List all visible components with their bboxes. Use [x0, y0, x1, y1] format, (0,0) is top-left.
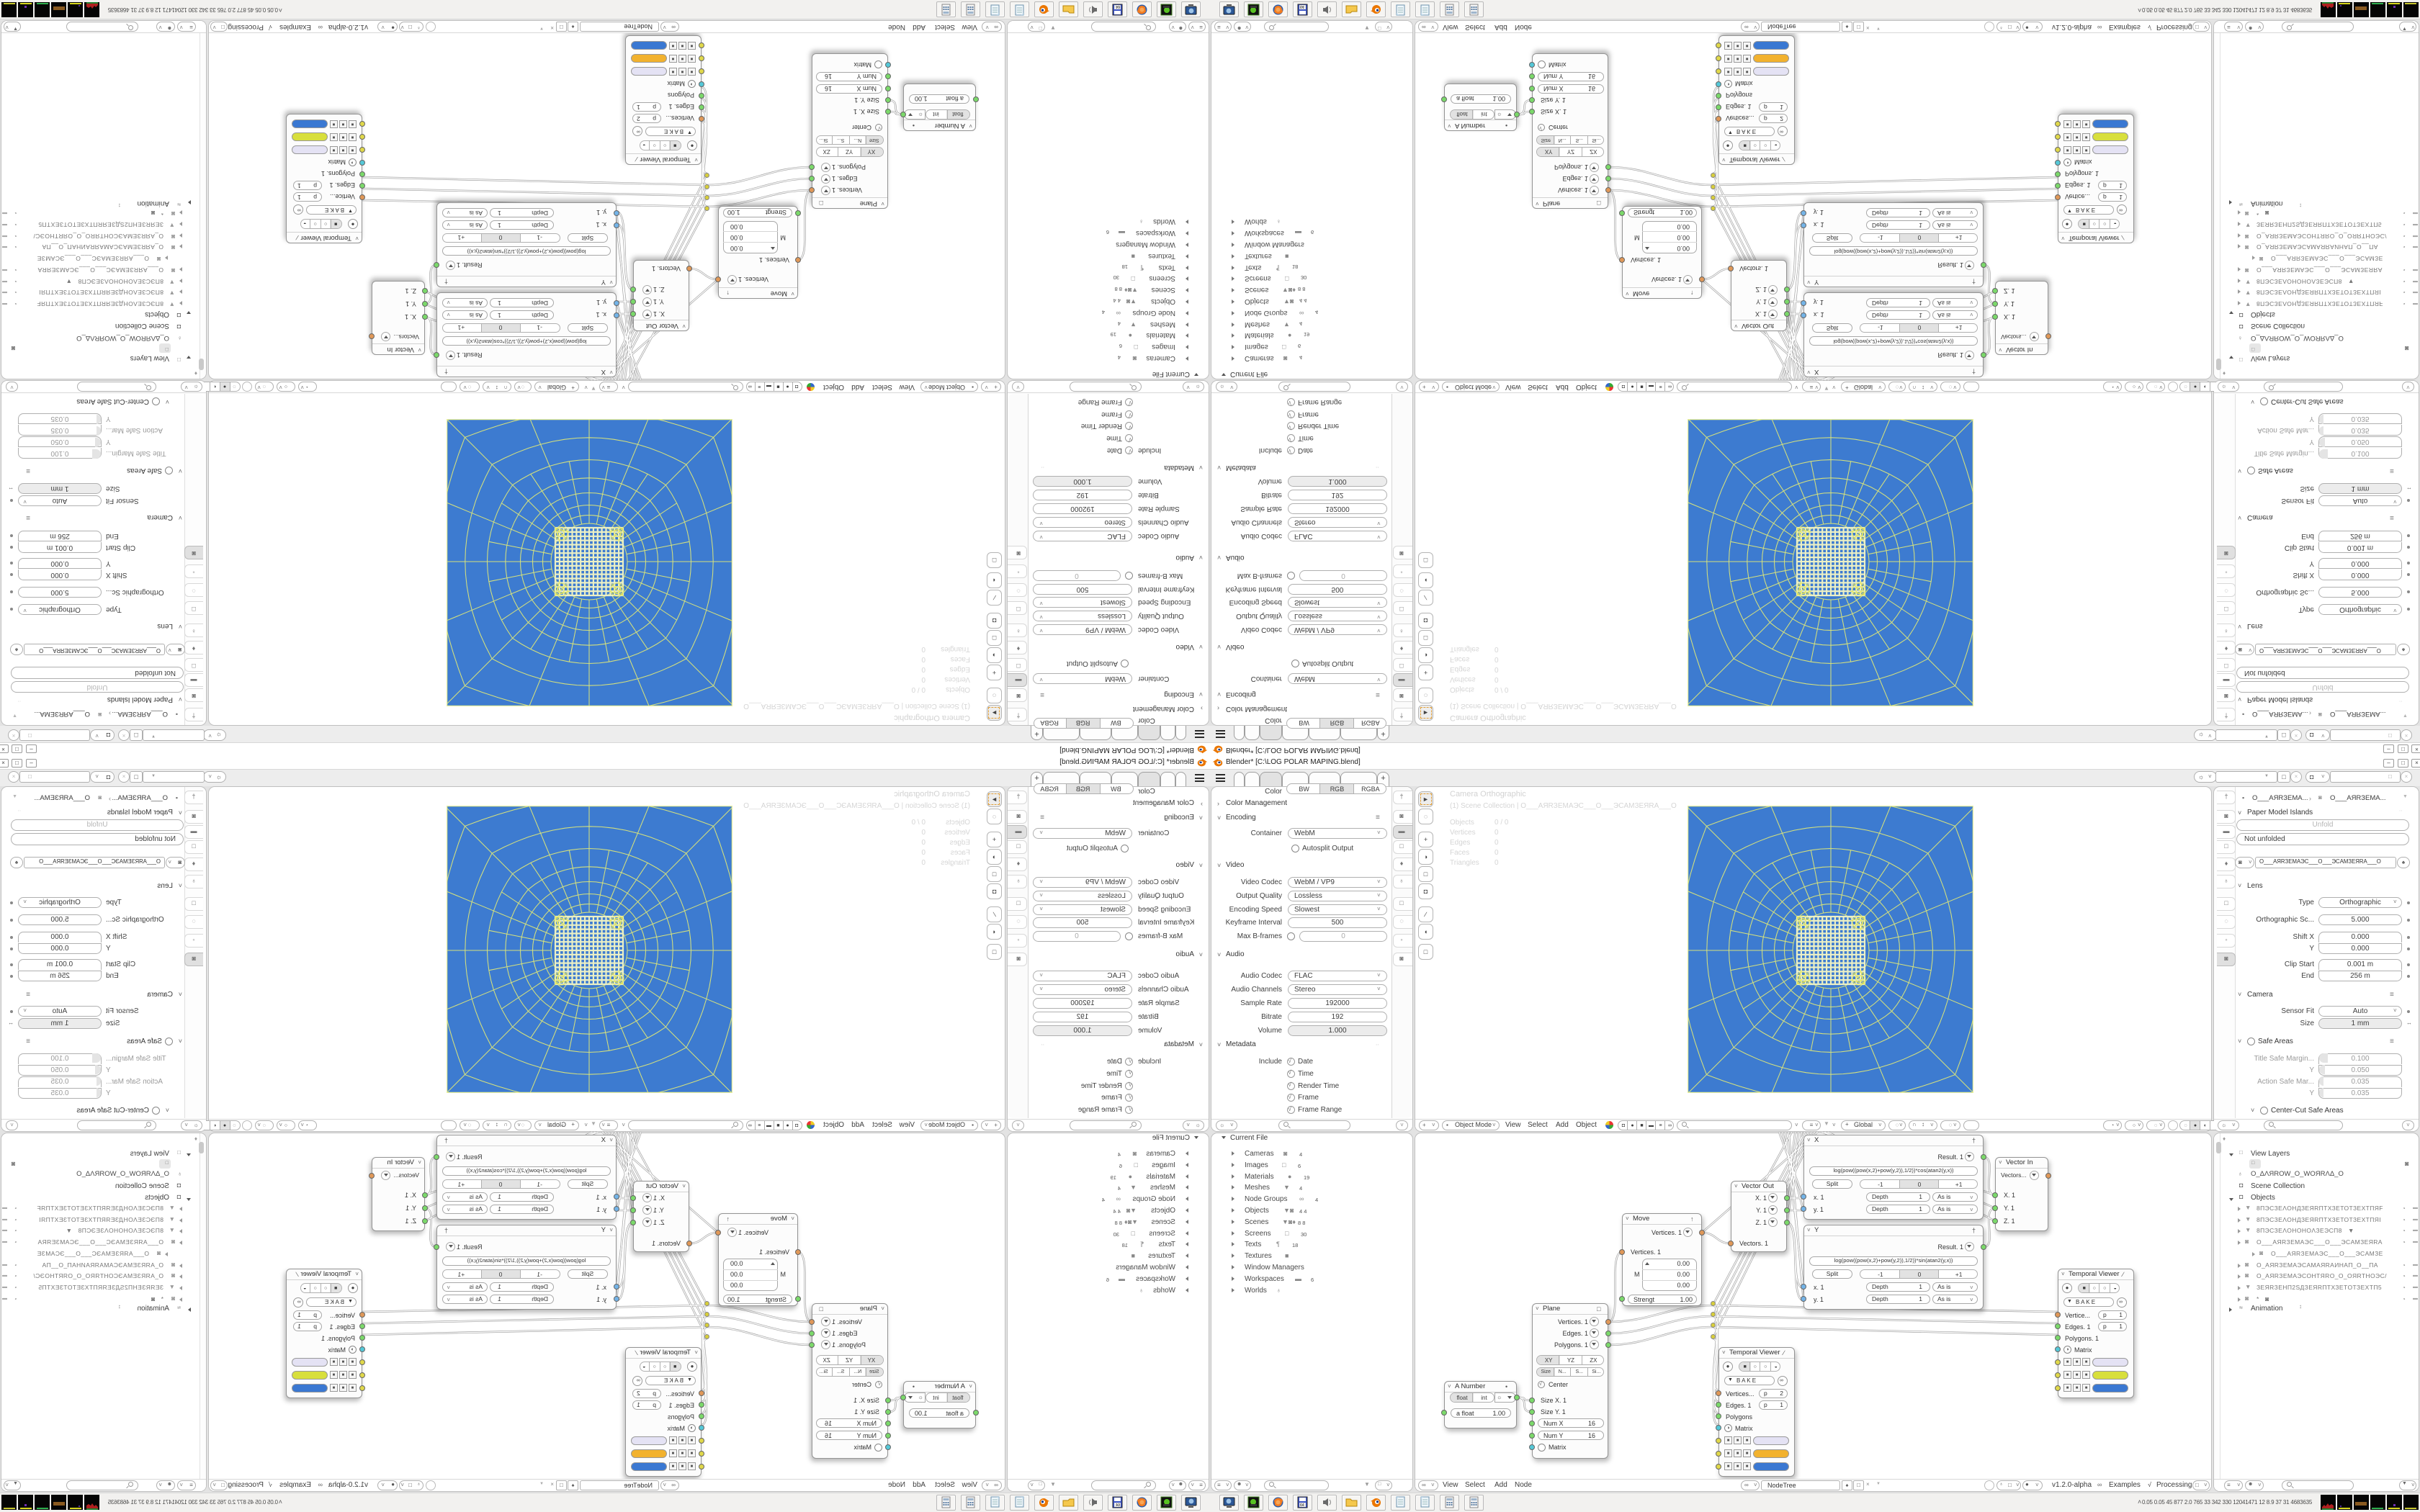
svg-text:64: 64 [1300, 4, 1304, 9]
svg-text:64: 64 [1300, 1503, 1304, 1508]
svg-text:64: 64 [1116, 4, 1120, 9]
svg-text:64: 64 [1116, 1503, 1120, 1508]
